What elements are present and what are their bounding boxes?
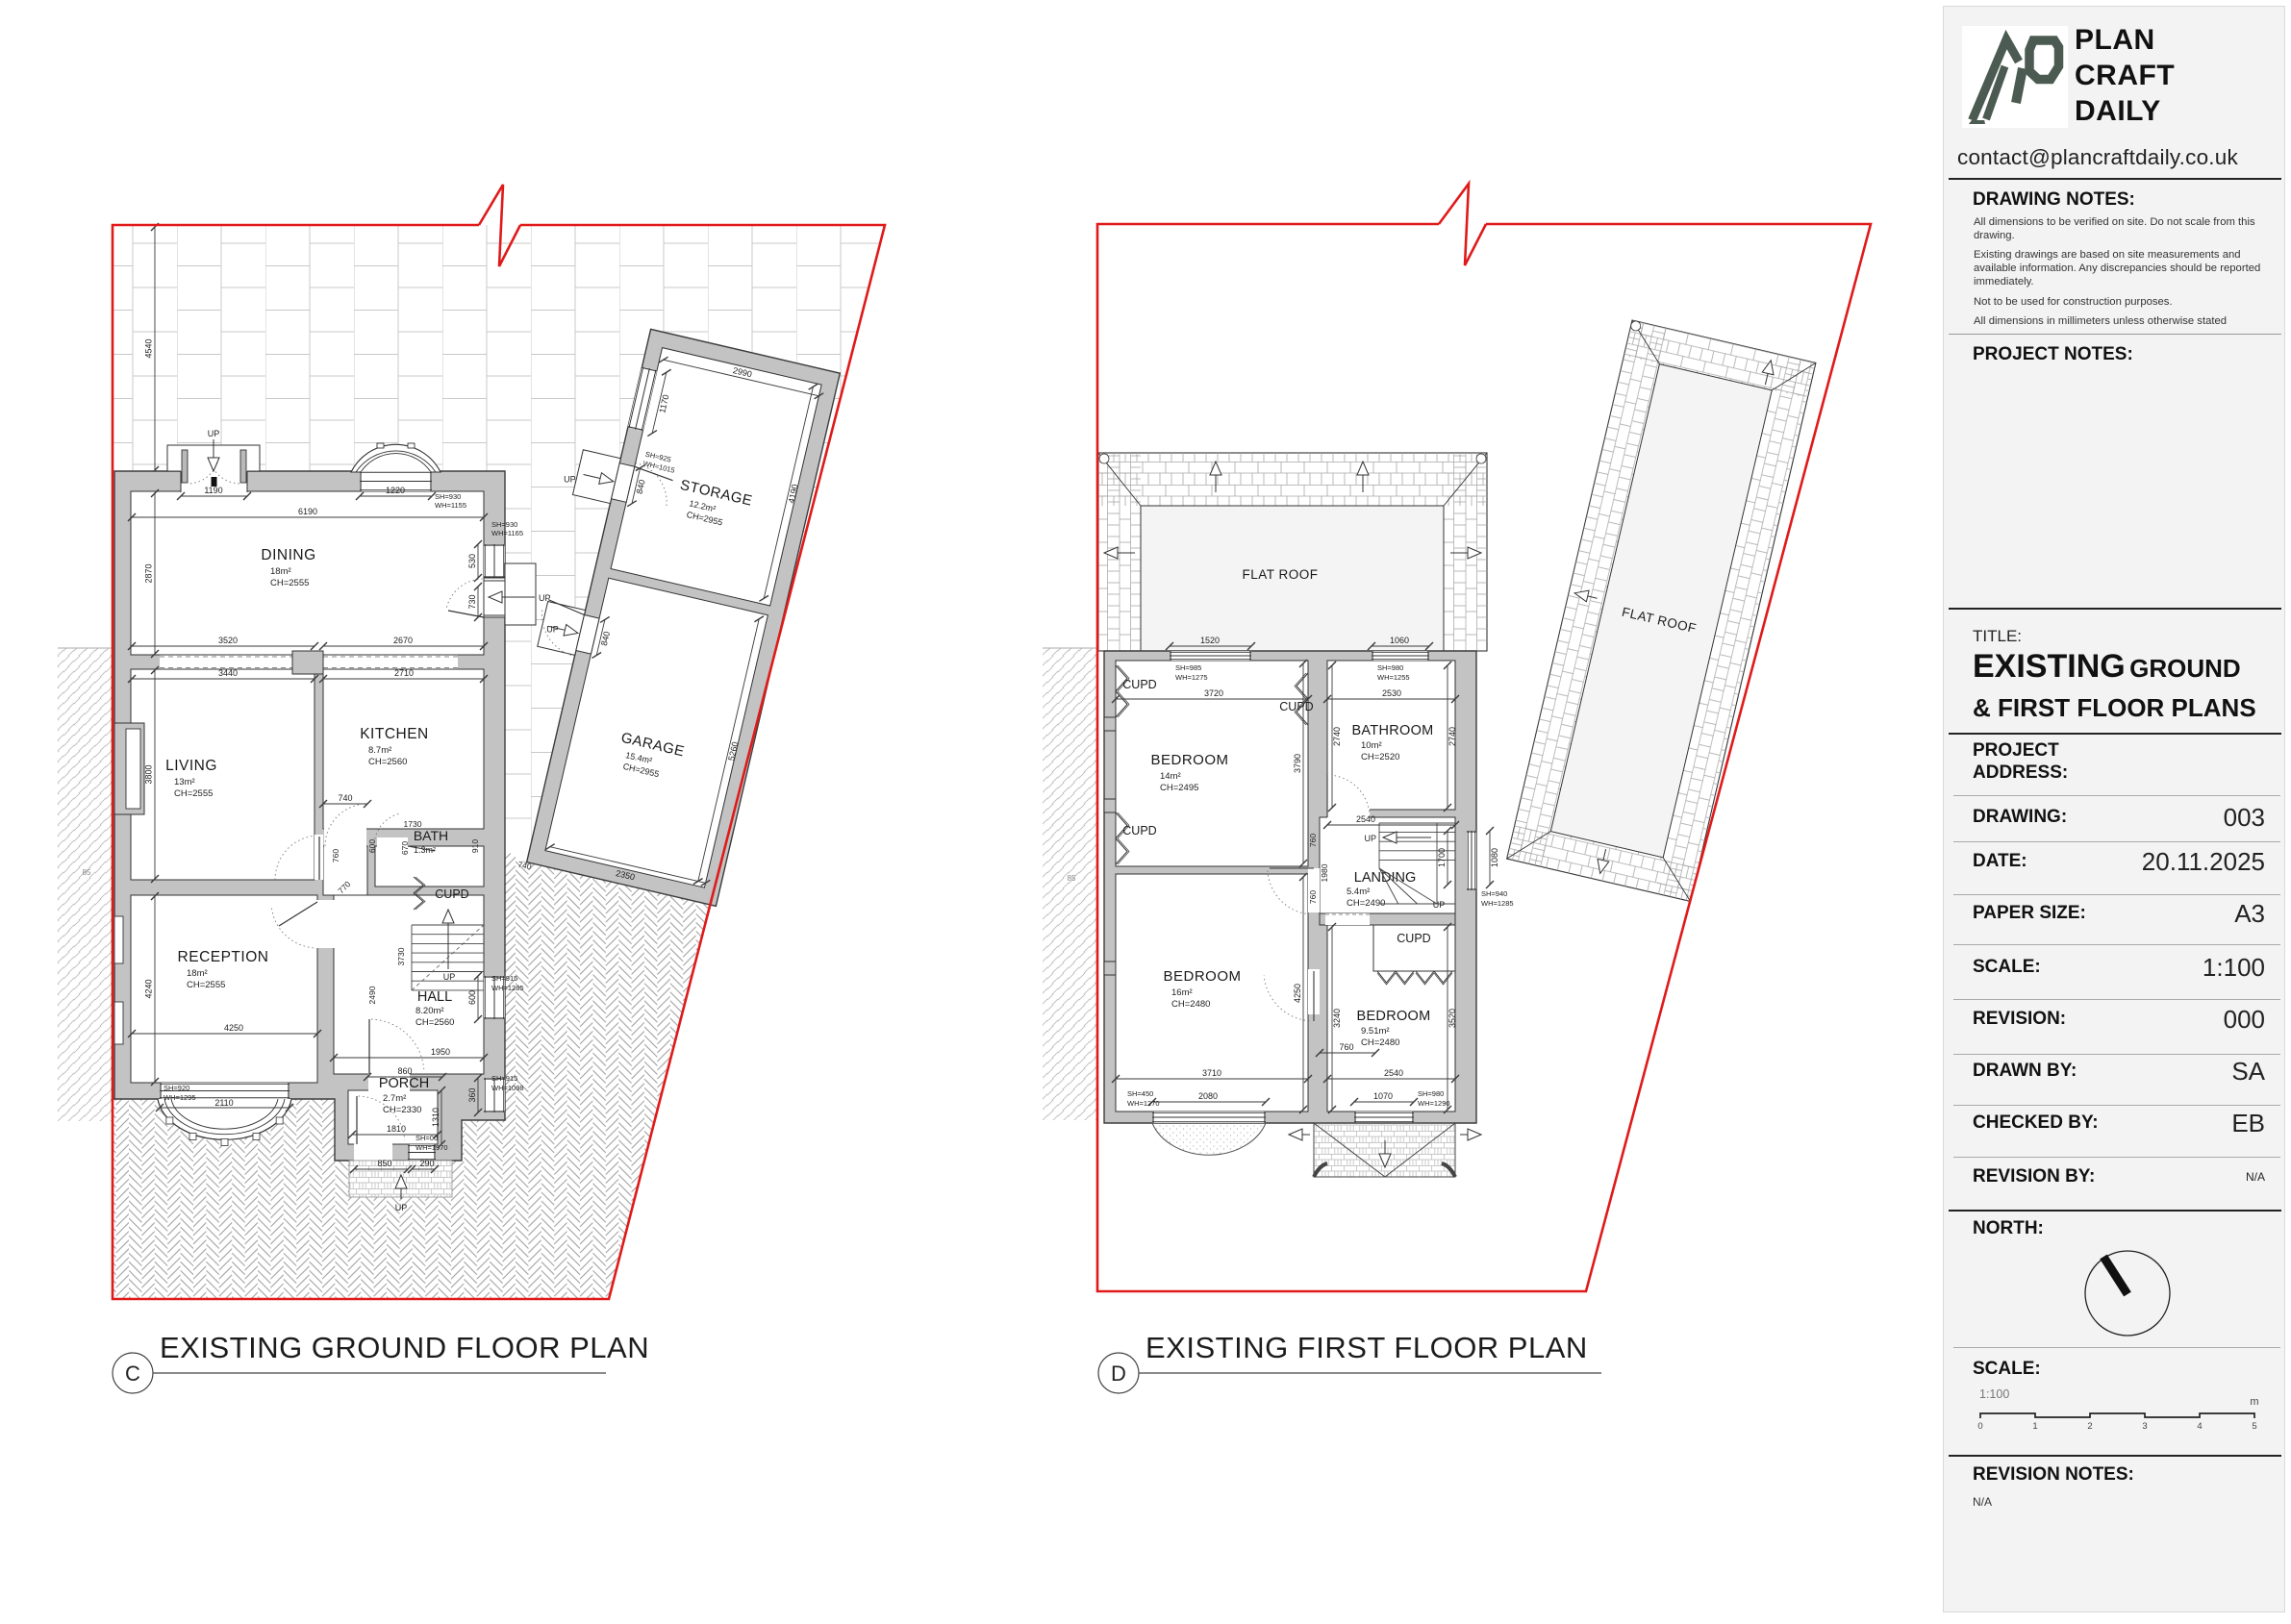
svg-text:860: 860	[397, 1066, 412, 1076]
svg-text:CH=2555: CH=2555	[187, 980, 225, 990]
svg-text:CUPD: CUPD	[1397, 932, 1430, 945]
svg-text:2.7m²: 2.7m²	[383, 1093, 406, 1104]
svg-text:UP: UP	[1433, 900, 1446, 910]
svg-text:WH=1098: WH=1098	[491, 1084, 524, 1092]
svg-text:1080: 1080	[1490, 848, 1499, 867]
svg-text:3: 3	[2142, 1421, 2147, 1432]
svg-text:CH=2495: CH=2495	[1160, 783, 1198, 793]
svg-text:CH=2555: CH=2555	[174, 788, 213, 799]
svg-text:WH=1295: WH=1295	[164, 1093, 196, 1102]
svg-text:CH=2520: CH=2520	[1361, 752, 1399, 762]
svg-text:530: 530	[467, 554, 477, 568]
svg-text:CH=2560: CH=2560	[415, 1017, 454, 1028]
svg-text:HALL: HALL	[417, 989, 452, 1005]
svg-text:4: 4	[2197, 1421, 2202, 1432]
svg-text:85: 85	[1068, 874, 1076, 883]
svg-text:1: 1	[2032, 1421, 2037, 1432]
svg-text:WH=1285: WH=1285	[491, 984, 524, 992]
svg-text:2740: 2740	[1332, 727, 1342, 746]
svg-text:4250: 4250	[224, 1023, 243, 1033]
svg-text:730: 730	[467, 594, 477, 609]
svg-text:CH=2480: CH=2480	[1171, 999, 1210, 1010]
svg-text:2530: 2530	[1382, 688, 1401, 698]
svg-text:WH=1155: WH=1155	[435, 501, 466, 510]
svg-text:2080: 2080	[1198, 1091, 1218, 1101]
svg-text:2740: 2740	[1448, 727, 1457, 746]
svg-text:m: m	[2250, 1396, 2258, 1408]
svg-text:BEDROOM: BEDROOM	[1163, 968, 1241, 985]
svg-text:DINING: DINING	[261, 547, 315, 563]
svg-text:CH=2490: CH=2490	[1347, 898, 1385, 909]
svg-text:WH=1270: WH=1270	[1127, 1099, 1160, 1108]
svg-text:1520: 1520	[1200, 636, 1220, 645]
svg-text:4240: 4240	[144, 979, 154, 998]
svg-text:CH=2560: CH=2560	[368, 757, 407, 767]
svg-text:CUPD: CUPD	[435, 887, 468, 901]
svg-text:850: 850	[377, 1159, 391, 1168]
svg-text:3240: 3240	[1332, 1009, 1342, 1028]
svg-text:2: 2	[2087, 1421, 2092, 1432]
svg-text:3520: 3520	[218, 636, 238, 645]
svg-text:BATH: BATH	[414, 828, 448, 843]
svg-text:C: C	[125, 1362, 140, 1386]
svg-text:D: D	[1111, 1362, 1126, 1386]
svg-text:9.51m²: 9.51m²	[1361, 1026, 1390, 1037]
svg-text:EXISTING FIRST FLOOR PLAN: EXISTING FIRST FLOOR PLAN	[1145, 1331, 1588, 1364]
svg-text:1810: 1810	[387, 1124, 406, 1134]
svg-text:WH=1165: WH=1165	[491, 529, 523, 537]
svg-text:1.3m²: 1.3m²	[414, 845, 436, 855]
svg-text:760: 760	[1308, 890, 1318, 904]
svg-text:SH=930: SH=930	[435, 492, 461, 501]
svg-text:1700: 1700	[1437, 848, 1447, 867]
svg-text:UP: UP	[208, 429, 220, 438]
svg-text:16m²: 16m²	[1171, 987, 1193, 998]
svg-text:10m²: 10m²	[1361, 740, 1382, 751]
svg-text:13m²: 13m²	[174, 777, 195, 787]
svg-text:WH=1285: WH=1285	[1481, 899, 1514, 908]
svg-text:KITCHEN: KITCHEN	[360, 726, 429, 742]
svg-text:1950: 1950	[431, 1047, 450, 1057]
svg-text:2110: 2110	[214, 1098, 233, 1108]
svg-text:SH=920: SH=920	[164, 1084, 189, 1092]
svg-text:SH=915: SH=915	[491, 1074, 517, 1083]
svg-text:18m²: 18m²	[270, 566, 291, 577]
svg-text:3520: 3520	[1448, 1009, 1457, 1028]
svg-text:4250: 4250	[1293, 984, 1302, 1003]
svg-text:0: 0	[1977, 1421, 1982, 1432]
svg-text:1980: 1980	[1320, 863, 1329, 882]
svg-text:1070: 1070	[1373, 1091, 1393, 1101]
svg-text:FLAT ROOF: FLAT ROOF	[1242, 567, 1318, 582]
svg-text:18m²: 18m²	[187, 968, 208, 979]
svg-text:8.20m²: 8.20m²	[415, 1006, 444, 1016]
svg-text:UP: UP	[443, 972, 456, 982]
svg-text:SH=980: SH=980	[1418, 1089, 1444, 1098]
svg-text:3710: 3710	[1202, 1068, 1221, 1078]
svg-text:2540: 2540	[1356, 814, 1375, 824]
svg-text:1220: 1220	[386, 486, 405, 495]
svg-text:LANDING: LANDING	[1354, 870, 1416, 886]
svg-text:4540: 4540	[144, 338, 154, 358]
svg-text:740: 740	[338, 793, 352, 803]
svg-text:5.4m²: 5.4m²	[1347, 887, 1370, 897]
svg-text:SH=00: SH=00	[415, 1134, 438, 1142]
svg-text:2870: 2870	[144, 563, 154, 583]
svg-text:SH=940: SH=940	[1481, 889, 1507, 898]
svg-text:WH=1290: WH=1290	[1418, 1099, 1450, 1108]
svg-text:3790: 3790	[1293, 754, 1302, 773]
svg-text:760: 760	[1308, 834, 1318, 847]
svg-text:CUPD: CUPD	[1122, 824, 1156, 837]
svg-text:SH=930: SH=930	[491, 520, 517, 529]
svg-text:SH=980: SH=980	[1377, 663, 1403, 672]
svg-text:760: 760	[1339, 1042, 1353, 1052]
svg-text:1310: 1310	[431, 1108, 441, 1127]
svg-text:600: 600	[367, 839, 377, 853]
svg-text:1190: 1190	[204, 486, 222, 495]
svg-text:BATHROOM: BATHROOM	[1351, 723, 1433, 738]
svg-text:CH=2555: CH=2555	[270, 578, 309, 588]
svg-text:3800: 3800	[144, 764, 154, 784]
svg-text:3720: 3720	[1204, 688, 1223, 698]
svg-text:760: 760	[331, 849, 340, 862]
svg-text:SH=985: SH=985	[1175, 663, 1201, 672]
svg-text:85: 85	[83, 868, 91, 877]
svg-text:910: 910	[470, 839, 480, 853]
svg-text:BEDROOM: BEDROOM	[1150, 752, 1228, 768]
svg-text:WH=1255: WH=1255	[1377, 673, 1410, 682]
svg-text:5: 5	[2252, 1421, 2256, 1432]
svg-text:3440: 3440	[218, 668, 238, 678]
svg-text:360: 360	[467, 1087, 477, 1102]
svg-text:2670: 2670	[393, 636, 413, 645]
svg-text:SH=915: SH=915	[491, 974, 517, 983]
svg-text:CH=2330: CH=2330	[383, 1105, 421, 1115]
svg-text:1730: 1730	[404, 819, 422, 829]
svg-text:1060: 1060	[1390, 636, 1409, 645]
svg-text:290: 290	[419, 1159, 434, 1168]
svg-text:PORCH: PORCH	[379, 1076, 429, 1091]
svg-text:WH=1970: WH=1970	[415, 1143, 448, 1152]
svg-text:BEDROOM: BEDROOM	[1356, 1009, 1430, 1024]
svg-text:2710: 2710	[394, 668, 414, 678]
svg-text:CH=2480: CH=2480	[1361, 1037, 1399, 1048]
svg-text:8.7m²: 8.7m²	[368, 745, 391, 756]
svg-text:EXISTING GROUND FLOOR PLAN: EXISTING GROUND FLOOR PLAN	[160, 1331, 649, 1364]
svg-text:6190: 6190	[298, 507, 317, 516]
svg-text:LIVING: LIVING	[165, 758, 217, 774]
svg-text:UP: UP	[1364, 834, 1376, 843]
svg-text:600: 600	[467, 990, 477, 1005]
svg-text:RECEPTION: RECEPTION	[178, 949, 269, 965]
svg-text:670: 670	[400, 841, 410, 855]
svg-text:2490: 2490	[367, 986, 377, 1004]
svg-text:2540: 2540	[1384, 1068, 1403, 1078]
svg-text:14m²: 14m²	[1160, 771, 1181, 782]
svg-text:UP: UP	[395, 1203, 408, 1212]
svg-text:WH=1275: WH=1275	[1175, 673, 1208, 682]
svg-text:UP: UP	[564, 474, 576, 484]
svg-text:3730: 3730	[396, 947, 406, 965]
svg-text:SH=450: SH=450	[1127, 1089, 1153, 1098]
